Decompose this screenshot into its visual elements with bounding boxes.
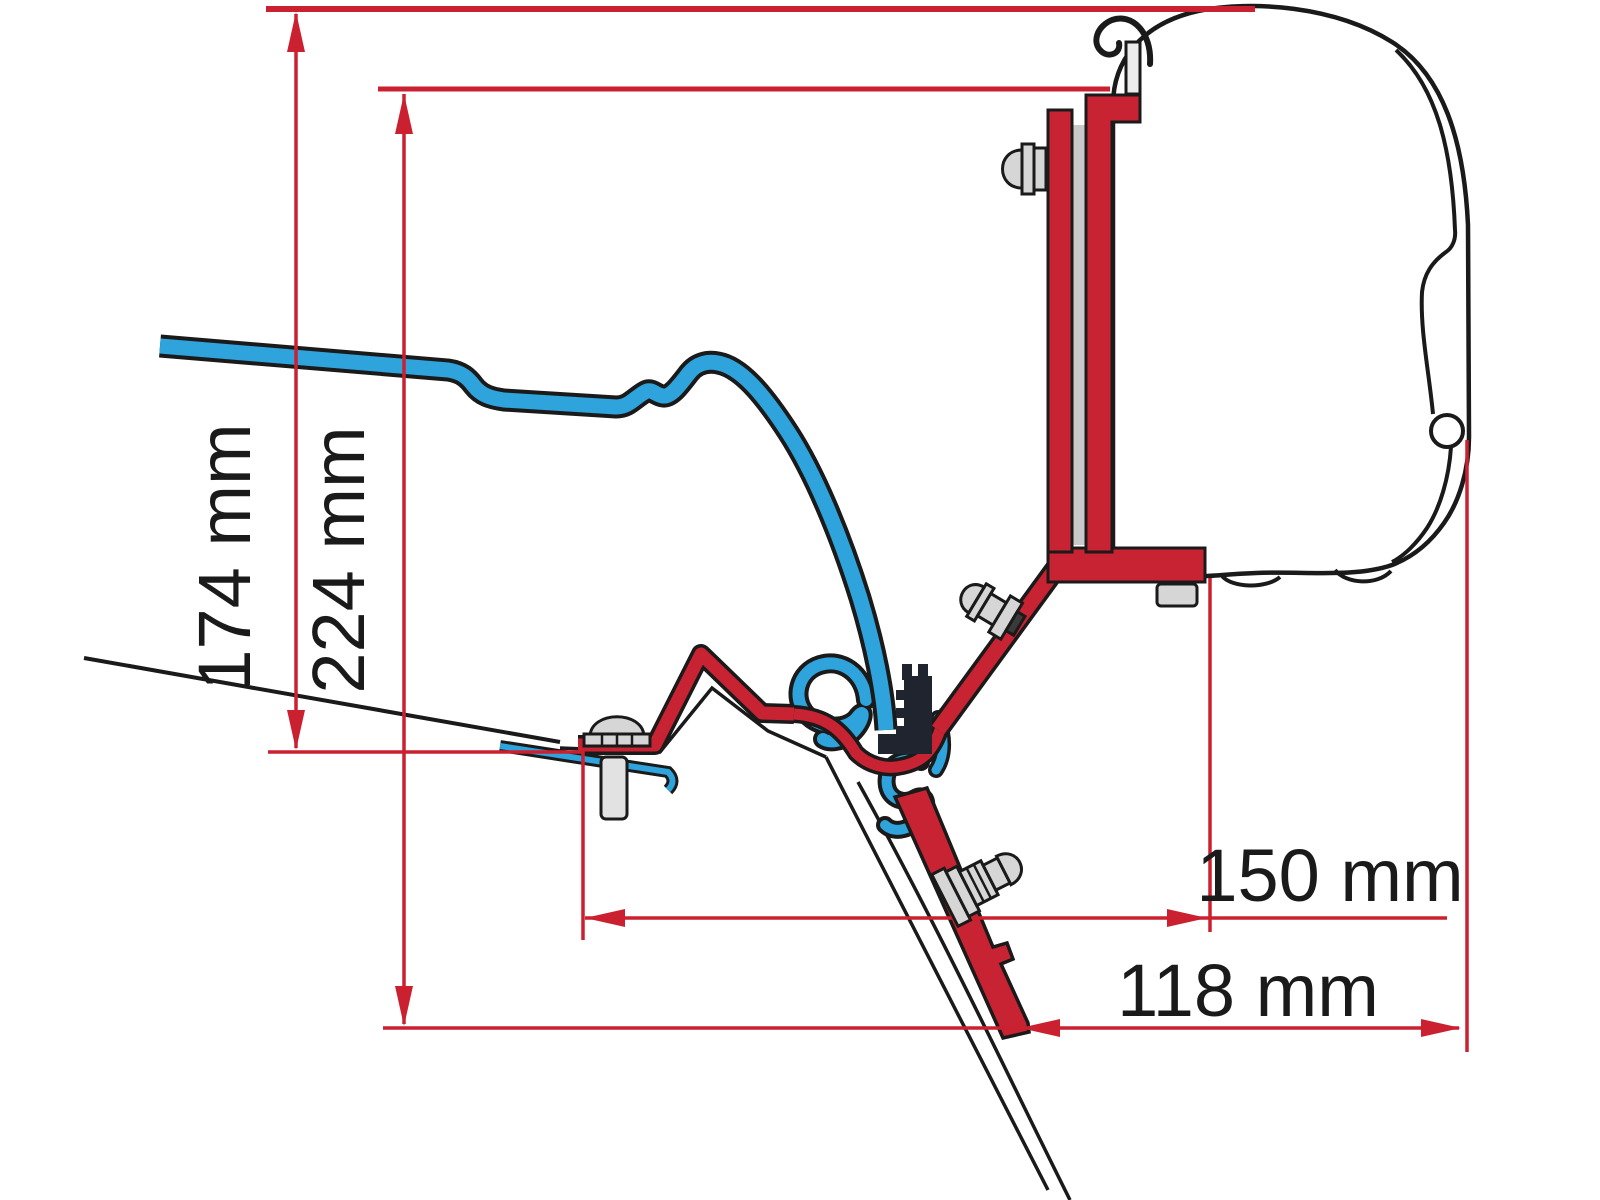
bracket-gap-shading [1073,125,1085,545]
bolt-stud [601,757,627,819]
dimension-label-224: 224 mm [297,426,380,693]
dimension-label-174: 174 mm [183,423,266,690]
awning-case-body [1113,6,1469,576]
awning-knob-icon [1431,415,1463,447]
diagram-canvas: 174 mm 224 mm 150 mm 118 mm [0,0,1600,1200]
hook-link [1126,42,1140,94]
van-pillar-line [858,782,1070,1200]
dimension-label-150: 150 mm [1196,834,1463,917]
adapter-bracket-red [578,95,1205,1038]
roof-rail-profile-blue [160,346,886,730]
foot-nut [1157,584,1197,606]
awning-case [1096,6,1469,585]
technical-diagram: 174 mm 224 mm 150 mm 118 mm [0,0,1600,1200]
dimension-label-118: 118 mm [1117,949,1379,1032]
bolt-awning-plate [1003,144,1047,194]
